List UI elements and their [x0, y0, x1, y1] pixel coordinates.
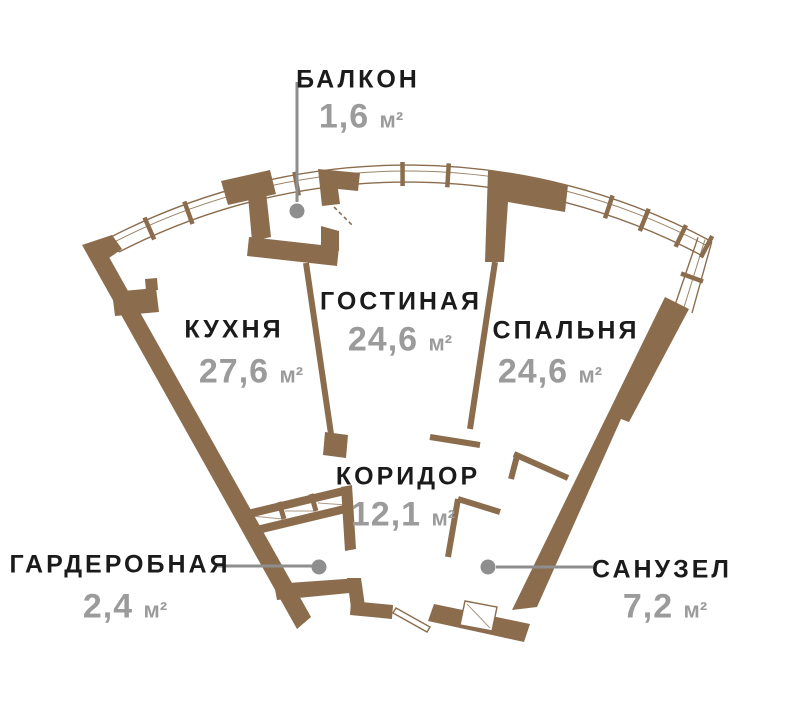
- balcony-label: БАЛКОН: [296, 66, 420, 95]
- window-outer-arc: [111, 165, 712, 242]
- bedroom-stub-wall: [430, 437, 480, 445]
- living-room-label: ГОСТИНАЯ: [320, 288, 482, 317]
- balcony-area: 1,6 м²: [319, 98, 403, 137]
- wardrobe-leader-dot: [312, 560, 327, 575]
- balcony-walls: [221, 169, 360, 266]
- living-room-area: 24,6 м²: [348, 321, 452, 360]
- entrance-door-leaf: [393, 608, 430, 632]
- kitchen-label: КУХНЯ: [184, 316, 283, 345]
- corridor-column: [323, 432, 348, 458]
- bathroom-label: САНУЗЕЛ: [592, 556, 732, 585]
- window-inner-arc: [119, 182, 704, 257]
- bedroom-bathroom-wall: [514, 454, 568, 478]
- corridor-area: 12,1 м²: [351, 496, 455, 535]
- bathroom-leader-dot: [481, 560, 496, 575]
- balcony-leader-dot: [290, 204, 305, 219]
- wardrobe-label: ГАРДЕРОБНАЯ: [9, 551, 230, 580]
- kitchen-pier-tab: [145, 278, 158, 291]
- kitchen-area: 27,6 м²: [199, 353, 303, 392]
- kitchen-pier: [112, 288, 159, 316]
- floor-plan: БАЛКОН 1,6 м² КУХНЯ 27,6 м² ГОСТИНАЯ 24,…: [0, 0, 800, 708]
- living-bedroom-pier: [485, 170, 568, 262]
- wardrobe-area: 2,4 м²: [83, 588, 167, 627]
- bathroom-area: 7,2 м²: [623, 588, 707, 627]
- bedroom-label: СПАЛЬНЯ: [493, 317, 640, 346]
- bathroom-corner-stub: [511, 456, 517, 479]
- bedroom-area: 24,6 м²: [498, 353, 602, 392]
- bathroom-top-left-wall: [458, 499, 500, 512]
- corridor-label: КОРИДОР: [336, 463, 480, 492]
- balcony-door: [334, 207, 352, 225]
